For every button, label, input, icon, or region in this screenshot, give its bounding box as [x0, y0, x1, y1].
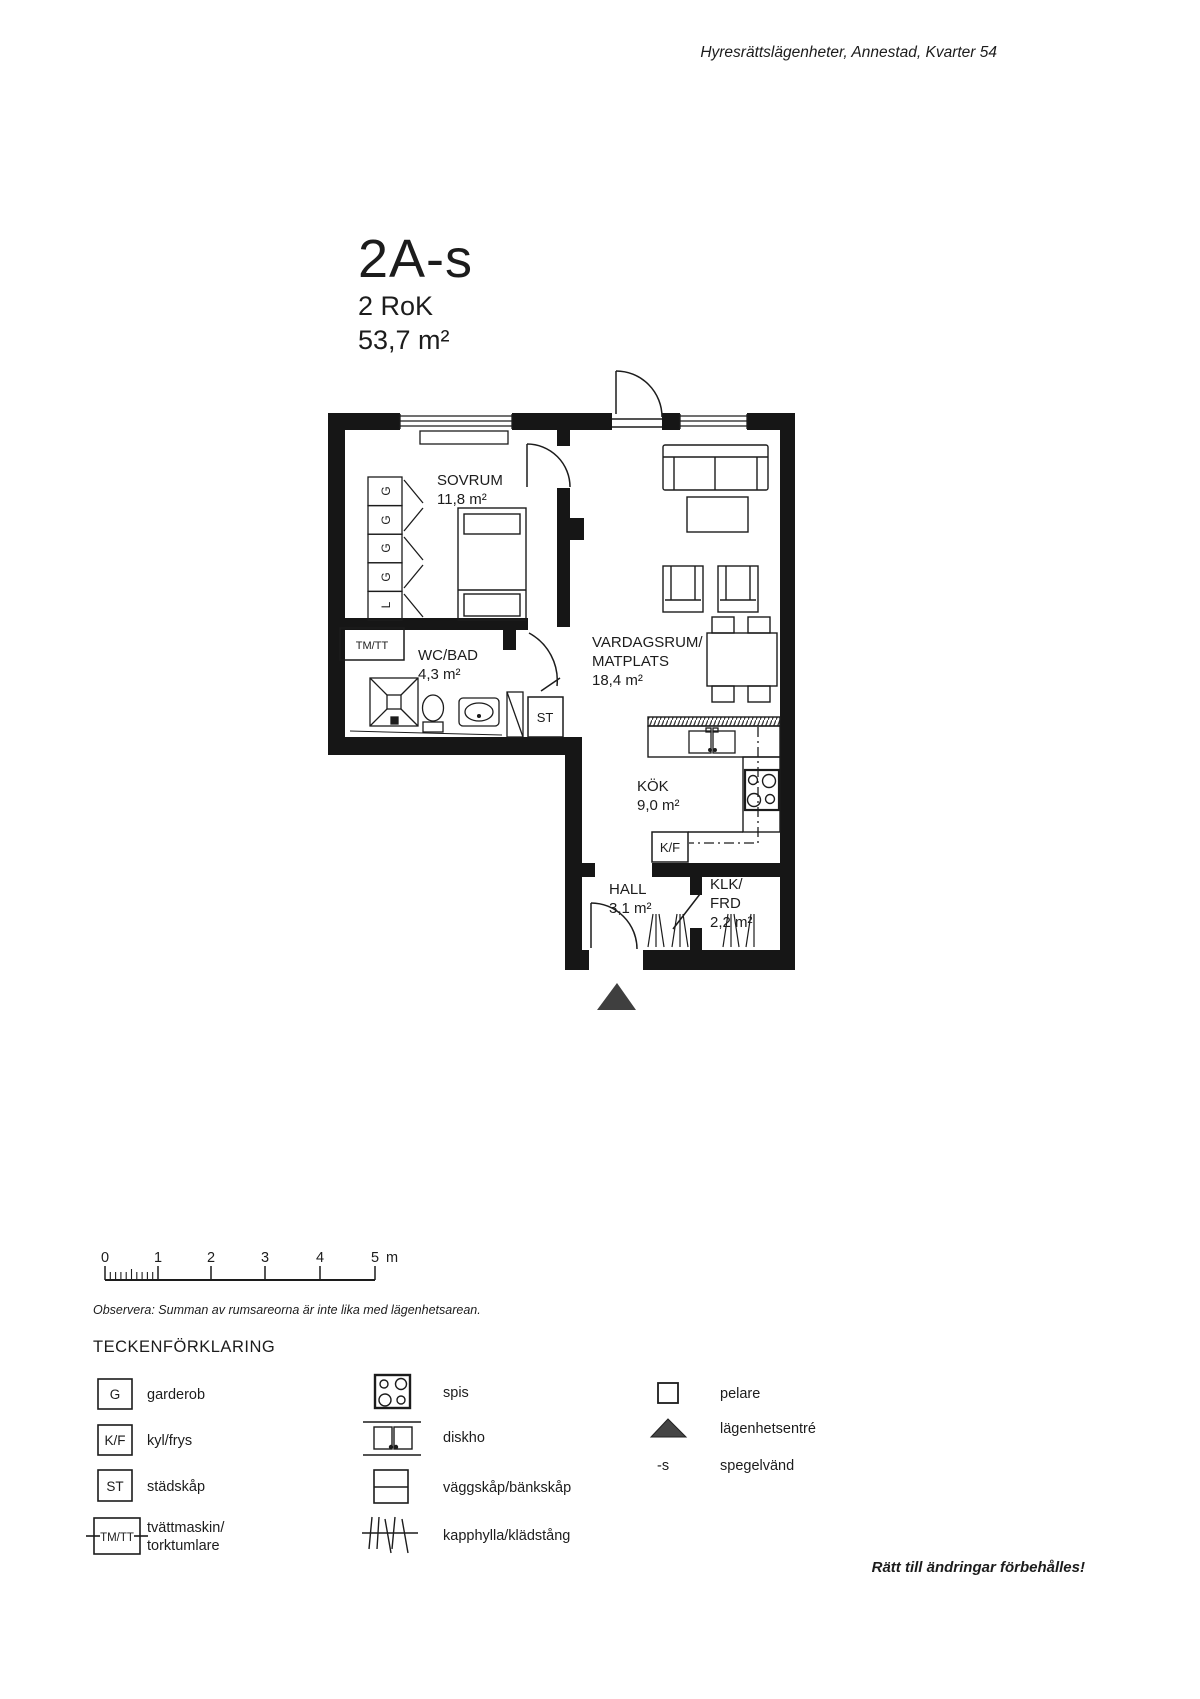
legend-kapphylla-label: kapphylla/klädstång: [443, 1528, 570, 1544]
legend-garderob-symbol: G: [110, 1387, 121, 1402]
scale-unit: m: [386, 1250, 398, 1266]
bathroom-door: [529, 633, 560, 691]
coat-rack: [648, 914, 688, 947]
coffee-table: [687, 497, 748, 532]
room-area-vardagsrum: 18,4 m²: [592, 672, 643, 689]
sofa: [663, 445, 768, 490]
wardrobe-label: G: [379, 486, 393, 495]
room-area-hall: 3,1 m²: [609, 900, 652, 917]
room-label-wcbad: WC/BAD: [418, 647, 478, 664]
room-label-klk-1: KLK/: [710, 876, 743, 893]
apartment-entrance-triangle: [597, 983, 636, 1010]
room-label-vardagsrum-2: MATPLATS: [592, 653, 669, 670]
kitchen-sink: [689, 728, 735, 753]
legend-spegelvand-label: spegelvänd: [720, 1458, 794, 1474]
legend-spegelvand-symbol: -s: [657, 1458, 669, 1474]
legend-title: TECKENFÖRKLARING: [93, 1338, 275, 1356]
wardrobe-label: G: [379, 572, 393, 581]
scale-tick-4: 4: [316, 1250, 324, 1266]
legend-kylfrys-symbol: K/F: [104, 1433, 125, 1448]
armchair: [663, 566, 703, 612]
room-label-sovrum: SOVRUM: [437, 472, 503, 489]
legend-stadskap-label: städskåp: [147, 1479, 205, 1495]
coat-rack-icon: [362, 1517, 418, 1553]
scale-tick-1: 1: [154, 1250, 162, 1266]
bed: [458, 508, 526, 620]
scale-tick-3: 3: [261, 1250, 269, 1266]
scale-tick-0: 0: [101, 1250, 109, 1266]
toilet: [423, 695, 444, 732]
area-note: Observera: Summan av rumsareorna är inte…: [93, 1303, 481, 1317]
scale-tick-5: 5: [371, 1250, 379, 1266]
balcony-door: [612, 371, 662, 427]
ceiling-dashdot-line: [689, 727, 758, 843]
sink-icon: [363, 1422, 421, 1455]
shower: [370, 678, 418, 726]
legend-diskho-label: diskho: [443, 1430, 485, 1446]
legend-pelare-label: pelare: [720, 1386, 760, 1402]
wardrobe-label: G: [379, 515, 393, 524]
legend-kylfrys-label: kyl/frys: [147, 1433, 192, 1449]
stove: [745, 770, 779, 810]
room-area-kok: 9,0 m²: [637, 797, 680, 814]
bathroom-sink: [459, 698, 499, 726]
room-label-klk-2: FRD: [710, 895, 741, 912]
room-area-sovrum: 11,8 m²: [437, 491, 487, 508]
room-label-kok: KÖK: [637, 777, 669, 795]
room-label-vardagsrum-1: VARDAGSRUM/: [592, 634, 703, 651]
fridge-freezer-label: K/F: [660, 840, 680, 855]
legend-entre-label: lägenhetsentré: [720, 1421, 816, 1437]
legend-stadskap-symbol: ST: [106, 1479, 123, 1494]
room-area-wcbad: 4,3 m²: [418, 666, 461, 683]
dining-table-chairs: [707, 617, 777, 702]
room-label-hall: HALL: [609, 881, 647, 898]
legend-tvattmaskin-label-1: tvättmaskin/: [147, 1520, 225, 1536]
kitchen-counter: [648, 717, 780, 832]
bedroom-window: [400, 414, 512, 444]
legend-spis-label: spis: [443, 1385, 469, 1401]
room-area-klk: 2,2 m²: [710, 914, 753, 931]
armchair: [718, 566, 758, 612]
legend-vaggskap-label: väggskåp/bänkskåp: [443, 1480, 571, 1496]
wardrobe-label: L: [379, 601, 393, 608]
duct-shaft: [507, 692, 523, 737]
scale-bar: [105, 1266, 375, 1280]
legend-tvattmaskin-symbol: TM/TT: [100, 1532, 134, 1544]
pillar-icon: [658, 1383, 678, 1403]
scale-tick-2: 2: [207, 1250, 215, 1266]
pillar: [557, 518, 584, 540]
disclaimer: Rätt till ändringar förbehålles!: [872, 1559, 1085, 1576]
legend-tvattmaskin-label-2: torktumlare: [147, 1538, 220, 1554]
washer-dryer-label: TM/TT: [356, 640, 389, 652]
cleaning-closet-label: ST: [537, 710, 554, 725]
wardrobe-cabinets: [368, 477, 423, 620]
livingroom-window: [680, 414, 747, 429]
apartment-id: 2A-s: [358, 229, 473, 289]
apartment-area: 53,7 m²: [358, 325, 450, 355]
closet-door: [673, 894, 700, 929]
floorplan-page: Hyresrättslägenheter, Annestad, Kvarter …: [0, 0, 1200, 1699]
entrance-triangle-icon: [651, 1419, 686, 1437]
bedroom-door: [527, 444, 570, 487]
wardrobe-label: G: [379, 543, 393, 552]
floorplan-drawing: Hyresrättslägenheter, Annestad, Kvarter …: [0, 0, 1200, 1699]
cabinet-icon: [374, 1470, 408, 1503]
apartment-rooms: 2 RoK: [358, 291, 433, 321]
stove-icon: [375, 1375, 410, 1408]
legend-garderob-label: garderob: [147, 1387, 205, 1403]
page-header: Hyresrättslägenheter, Annestad, Kvarter …: [700, 44, 997, 61]
